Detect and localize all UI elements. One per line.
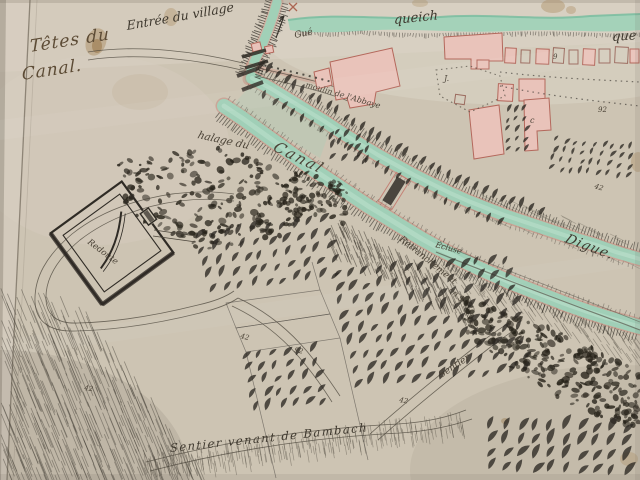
bank-hatch-stroke: [584, 32, 585, 37]
bank-hatch-stroke: [362, 30, 363, 34]
bank-hatch-stroke: [606, 33, 607, 37]
bank-hatch-stroke: [338, 32, 339, 37]
bank-hatch-stroke: [559, 32, 560, 35]
building: [469, 105, 504, 159]
edge-shade: [635, 0, 640, 480]
building-letter: c: [530, 116, 535, 125]
bank-hatch-stroke: [515, 32, 516, 37]
bank-hatch-stroke: [591, 33, 592, 37]
edge-shade: [0, 474, 640, 480]
stain: [566, 6, 576, 14]
map-canvas: Têtes du Canal. Entrée du village queich…: [0, 0, 640, 480]
bank-hatch-stroke: [519, 228, 520, 232]
bank-hatch-stroke: [360, 31, 361, 34]
building: [264, 45, 273, 54]
field-mark: 92: [598, 106, 607, 114]
map-photo: Têtes du Canal. Entrée du village queich…: [0, 0, 640, 480]
building: [498, 84, 514, 102]
